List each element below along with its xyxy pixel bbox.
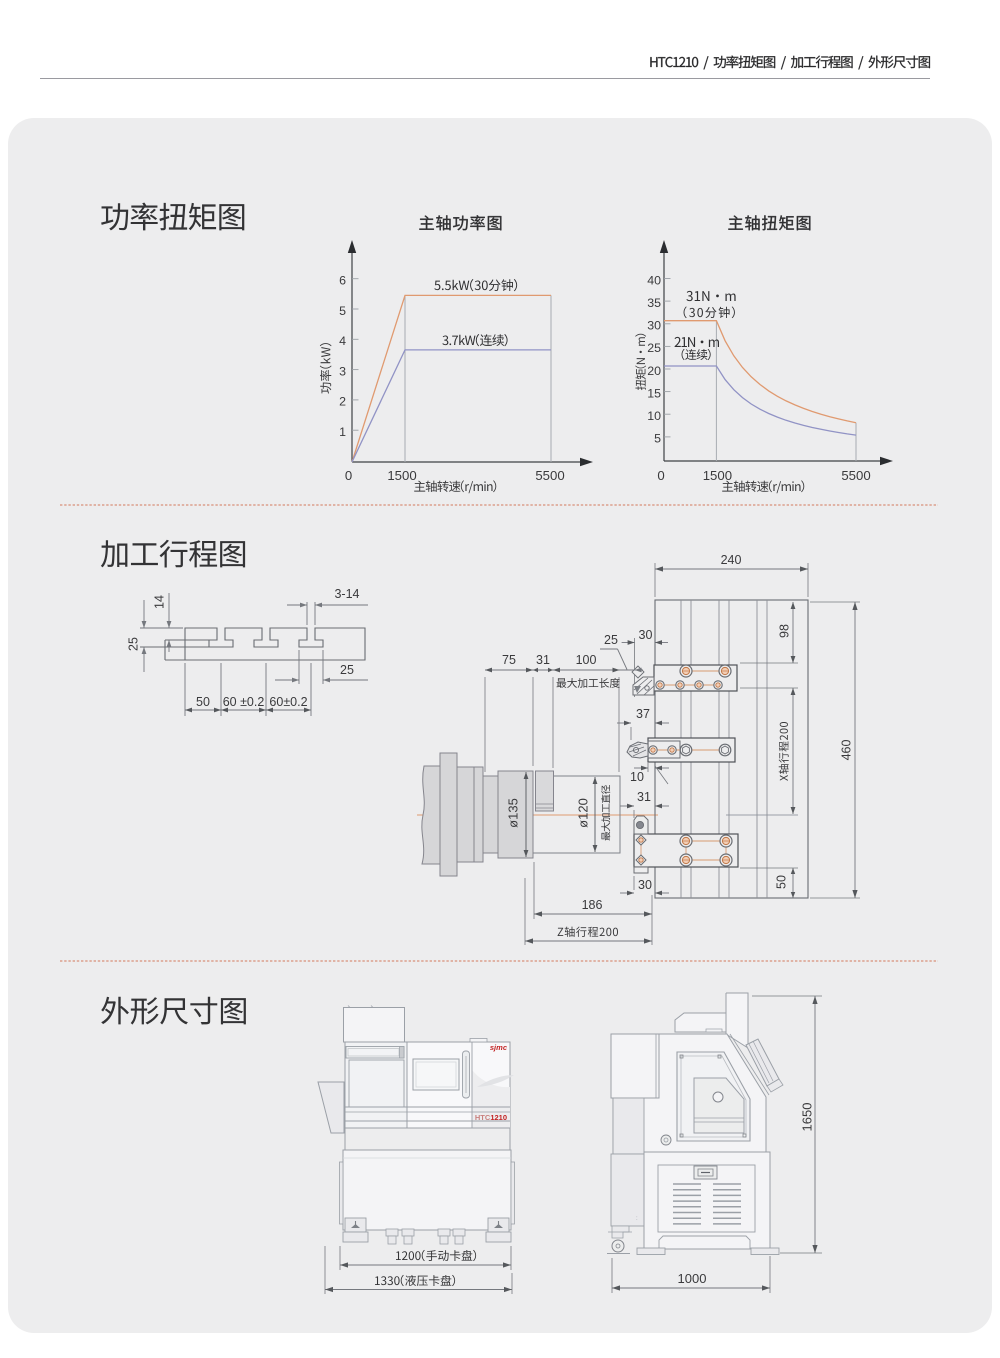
svg-text:ø135: ø135	[506, 798, 521, 828]
svg-text:0: 0	[345, 468, 352, 483]
svg-text:98: 98	[777, 624, 791, 638]
svg-text:25: 25	[647, 341, 661, 355]
svg-text:50: 50	[774, 875, 788, 889]
svg-text:5: 5	[339, 304, 346, 318]
svg-text:37: 37	[636, 707, 650, 721]
svg-text:75: 75	[502, 653, 516, 667]
svg-text:25: 25	[604, 633, 618, 647]
svg-text:100: 100	[576, 653, 597, 667]
svg-text:3: 3	[339, 364, 346, 378]
svg-text:10: 10	[630, 770, 644, 784]
svg-text:6: 6	[339, 274, 346, 288]
svg-text:60±0.2: 60±0.2	[269, 695, 307, 709]
svg-text:30: 30	[638, 878, 652, 892]
svg-text:460: 460	[839, 740, 853, 761]
svg-text:30: 30	[639, 628, 653, 642]
svg-text:1500: 1500	[703, 468, 732, 483]
svg-text:ø120: ø120	[576, 798, 591, 828]
svg-text:1000: 1000	[678, 1271, 707, 1286]
svg-text:31: 31	[637, 790, 651, 804]
svg-text:50: 50	[196, 695, 210, 709]
svg-text:40: 40	[647, 273, 661, 287]
svg-text:sjmc: sjmc	[490, 1043, 508, 1052]
svg-text:1: 1	[339, 425, 346, 439]
svg-text:240: 240	[721, 553, 742, 567]
svg-text:25: 25	[126, 637, 140, 651]
svg-text:2: 2	[339, 395, 346, 409]
svg-text:25: 25	[340, 663, 354, 677]
svg-text:14: 14	[152, 595, 166, 609]
svg-text:15: 15	[647, 386, 661, 400]
svg-text:186: 186	[582, 898, 603, 912]
svg-text:60 ±0.2: 60 ±0.2	[223, 695, 265, 709]
svg-text:5500: 5500	[841, 468, 870, 483]
svg-text:35: 35	[647, 296, 661, 310]
svg-text:0: 0	[657, 468, 664, 483]
svg-text:31: 31	[536, 653, 550, 667]
svg-text:10: 10	[647, 409, 661, 423]
svg-text:1500: 1500	[387, 468, 416, 483]
svg-text:3-14: 3-14	[334, 587, 359, 601]
svg-text:5500: 5500	[535, 468, 564, 483]
svg-text:4: 4	[339, 334, 346, 348]
svg-text:1650: 1650	[800, 1103, 815, 1132]
svg-text:30: 30	[647, 319, 661, 333]
svg-text:20: 20	[647, 364, 661, 378]
svg-text:5: 5	[654, 432, 661, 446]
